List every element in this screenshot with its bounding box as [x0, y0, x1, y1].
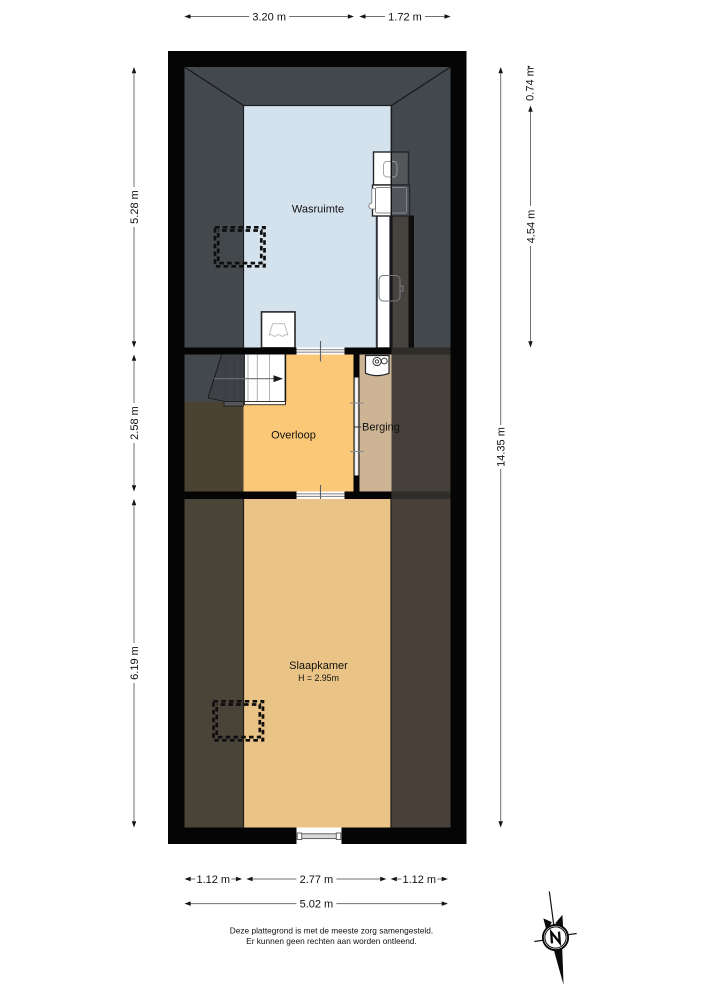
svg-text:5.28 m: 5.28 m: [129, 190, 141, 224]
svg-text:0.74 m: 0.74 m: [525, 67, 537, 101]
svg-text:5.02 m: 5.02 m: [300, 898, 334, 910]
svg-text:1.72 m: 1.72 m: [388, 11, 422, 23]
svg-text:6.19 m: 6.19 m: [129, 646, 141, 680]
svg-text:Deze plattegrond is met de mee: Deze plattegrond is met de meeste zorg s…: [230, 926, 433, 936]
svg-text:Slaapkamer: Slaapkamer: [289, 660, 348, 672]
svg-text:Wasruimte: Wasruimte: [292, 204, 344, 216]
svg-text:Berging: Berging: [362, 422, 400, 434]
svg-text:2.58 m: 2.58 m: [129, 406, 141, 440]
svg-text:4.54 m: 4.54 m: [526, 210, 538, 244]
svg-text:1.12 m: 1.12 m: [402, 874, 436, 886]
svg-text:14.35 m: 14.35 m: [496, 427, 508, 467]
svg-text:H = 2.95m: H = 2.95m: [298, 673, 339, 683]
svg-text:1.12 m: 1.12 m: [196, 874, 230, 886]
svg-text:3.20 m: 3.20 m: [252, 11, 286, 23]
svg-text:Er kunnen geen rechten aan wor: Er kunnen geen rechten aan worden ontlee…: [246, 936, 417, 946]
svg-text:2.77 m: 2.77 m: [300, 874, 334, 886]
svg-text:Overloop: Overloop: [271, 430, 316, 442]
